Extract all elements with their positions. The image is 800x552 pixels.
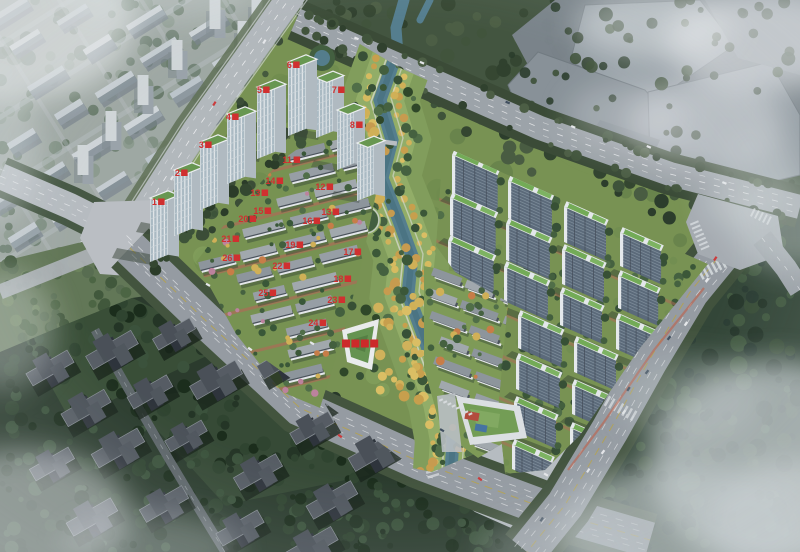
- svg-text:2: 2: [175, 168, 180, 178]
- svg-text:15: 15: [253, 206, 263, 216]
- svg-text:13: 13: [250, 188, 260, 198]
- svg-text:12: 12: [315, 182, 325, 192]
- svg-text:1: 1: [152, 197, 157, 207]
- svg-text:25: 25: [258, 288, 268, 298]
- svg-text:17: 17: [343, 247, 353, 257]
- svg-text:21: 21: [221, 234, 231, 244]
- svg-text:16: 16: [302, 216, 312, 226]
- svg-text:7: 7: [332, 85, 337, 95]
- svg-text:13: 13: [321, 207, 331, 217]
- svg-text:4: 4: [226, 112, 231, 122]
- svg-text:11: 11: [282, 155, 292, 165]
- svg-text:6: 6: [287, 60, 292, 70]
- svg-text:26: 26: [222, 253, 232, 263]
- svg-text:22: 22: [272, 261, 282, 271]
- svg-text:5: 5: [257, 85, 262, 95]
- svg-text:18: 18: [333, 274, 343, 284]
- svg-text:3: 3: [199, 140, 204, 150]
- svg-text:20: 20: [238, 214, 248, 224]
- svg-text:24: 24: [308, 318, 318, 328]
- svg-text:8: 8: [350, 120, 355, 130]
- svg-text:23: 23: [327, 295, 337, 305]
- svg-text:14: 14: [265, 176, 275, 186]
- svg-text:19: 19: [285, 240, 295, 250]
